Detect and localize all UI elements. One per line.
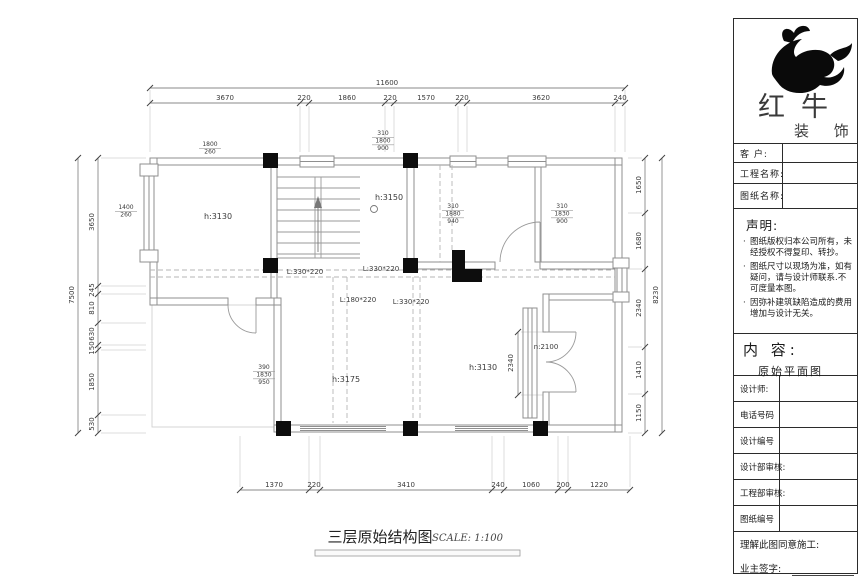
room-label: h:3130 — [469, 363, 497, 372]
dim-label: 3670 — [216, 94, 234, 102]
svg-text:1800: 1800 — [375, 138, 390, 145]
dim-label: 530 — [88, 417, 96, 430]
statement-item: 图纸尺寸以现场为准，如有疑问，请与设计师联系.不可度量本图。 — [742, 262, 854, 295]
dim-label: 7500 — [68, 286, 76, 304]
svg-text:900: 900 — [556, 218, 568, 225]
svg-text:260: 260 — [120, 212, 132, 219]
dim-label: 150 — [88, 341, 96, 354]
design-review-field-label: 设计部审核: — [740, 461, 785, 473]
beam-label: L:330*220 — [393, 298, 429, 306]
dim-label: 220 — [383, 94, 396, 102]
dim-label: 3410 — [397, 481, 415, 489]
window-callout: 1400 260 — [115, 204, 137, 219]
dim-label: 1150 — [635, 404, 643, 422]
dim-label: 3650 — [88, 213, 96, 231]
beam-label: L:330*220 — [363, 265, 399, 273]
statement-list: 图纸版权归本公司所有，未经授权不得复印、转抄。 图纸尺寸以现场为准，如有疑问，请… — [742, 237, 854, 323]
drawing-no-field-label: 图纸编号 — [740, 513, 774, 525]
svg-text:1800: 1800 — [202, 141, 217, 148]
svg-text:1400: 1400 — [118, 204, 133, 211]
dim-label: 1060 — [522, 481, 540, 489]
drawing-sheet: 11600 3670 220 1860 220 1570 220 3620 24… — [0, 0, 860, 580]
floor-plan: 11600 3670 220 1860 220 1570 220 3620 24… — [0, 0, 730, 580]
svg-text:1830: 1830 — [256, 372, 271, 379]
statement-item: 图纸版权归本公司所有，未经授权不得复印、转抄。 — [742, 237, 854, 259]
dim-label: 1650 — [635, 176, 643, 194]
level-marker-icon — [371, 206, 378, 213]
signature-line — [792, 575, 854, 576]
svg-text:940: 940 — [447, 218, 459, 225]
bull-swoosh-icon — [772, 26, 852, 93]
dim-label: 200 — [556, 481, 569, 489]
svg-text:390: 390 — [258, 364, 270, 371]
dim-label: 245 — [88, 283, 96, 296]
design-no-field-label: 设计编号 — [740, 435, 774, 447]
agreement-label: 理解此图同意施工: — [740, 537, 819, 551]
svg-text:310: 310 — [556, 203, 568, 210]
dim-label: 630 — [88, 327, 96, 340]
dim-label: 3620 — [532, 94, 550, 102]
dim-label: 240 — [491, 481, 504, 489]
room-label: h:3175 — [332, 375, 360, 384]
staircase — [277, 177, 360, 258]
dim-label: 8230 — [652, 286, 660, 304]
window-callout: 1800 260 — [199, 141, 221, 156]
content-heading: 内 容: — [743, 339, 799, 360]
dim-label: 240 — [613, 94, 626, 102]
drawing-name-field-label: 图纸名称: — [740, 189, 784, 202]
dim-label: 2340 — [635, 299, 643, 317]
phone-field-label: 电话号码 — [740, 409, 774, 421]
dim-label: 1850 — [88, 373, 96, 391]
svg-text:900: 900 — [377, 145, 389, 152]
svg-text:260: 260 — [204, 149, 216, 156]
beam-label: L:180*220 — [340, 296, 376, 304]
brand-subname: 装 饰 — [794, 122, 857, 140]
statement-item: 因弥补建筑缺陷造成的费用增加与设计无关。 — [742, 298, 854, 320]
owner-signature-label: 业主签字: — [740, 561, 781, 575]
svg-text:310: 310 — [447, 203, 459, 210]
dim-label: 1570 — [417, 94, 435, 102]
title-block: 红牛 装 饰 客 户: 工程名称: 图纸名称: 声明: 图纸版权归本公司所有，未… — [733, 18, 858, 574]
window-callout: 310 1830 900 — [551, 203, 573, 225]
designer-field-label: 设计师: — [740, 383, 768, 395]
content-value: 原始平面图 — [758, 363, 823, 379]
drawing-title: 三层原始结构图 — [327, 528, 432, 546]
room-label: h:3130 — [204, 212, 232, 221]
svg-text:1830: 1830 — [554, 211, 569, 218]
svg-text:1880: 1880 — [445, 211, 460, 218]
dim-label: 220 — [455, 94, 468, 102]
dim-label: 220 — [297, 94, 310, 102]
dim-label: 1410 — [635, 361, 643, 379]
room-label: h:3150 — [375, 193, 403, 202]
window-callout: 310 1800 900 — [372, 130, 394, 152]
project-name-field-label: 工程名称: — [740, 167, 784, 180]
dim-label: 220 — [307, 481, 320, 489]
window-callout: 310 1880 940 — [442, 203, 464, 225]
room-label: n:2100 — [534, 343, 559, 351]
brand-logo: 红牛 装 饰 — [734, 19, 857, 143]
window-callout: 390 1830 950 — [253, 364, 275, 386]
svg-text:310: 310 — [377, 130, 389, 137]
dim-label: 11600 — [376, 79, 398, 87]
dim-label: 1220 — [590, 481, 608, 489]
statement-heading: 声明: — [746, 215, 778, 234]
customer-field-label: 客 户: — [740, 147, 768, 160]
columns — [263, 153, 548, 436]
dim-label: 810 — [88, 301, 96, 314]
dim-label: 1680 — [635, 232, 643, 250]
dim-label: 1860 — [338, 94, 356, 102]
door-swings — [228, 222, 576, 392]
drawing-scale: SCALE: 1:100 — [432, 533, 504, 544]
dim-label: 2340 — [507, 354, 515, 372]
beam-label: L:330*220 — [287, 268, 323, 276]
dim-label: 1370 — [265, 481, 283, 489]
engineering-review-field-label: 工程部审核: — [740, 487, 785, 499]
brand-name: 红牛 — [758, 92, 844, 123]
caption-bar — [315, 550, 520, 556]
svg-text:950: 950 — [258, 379, 270, 386]
